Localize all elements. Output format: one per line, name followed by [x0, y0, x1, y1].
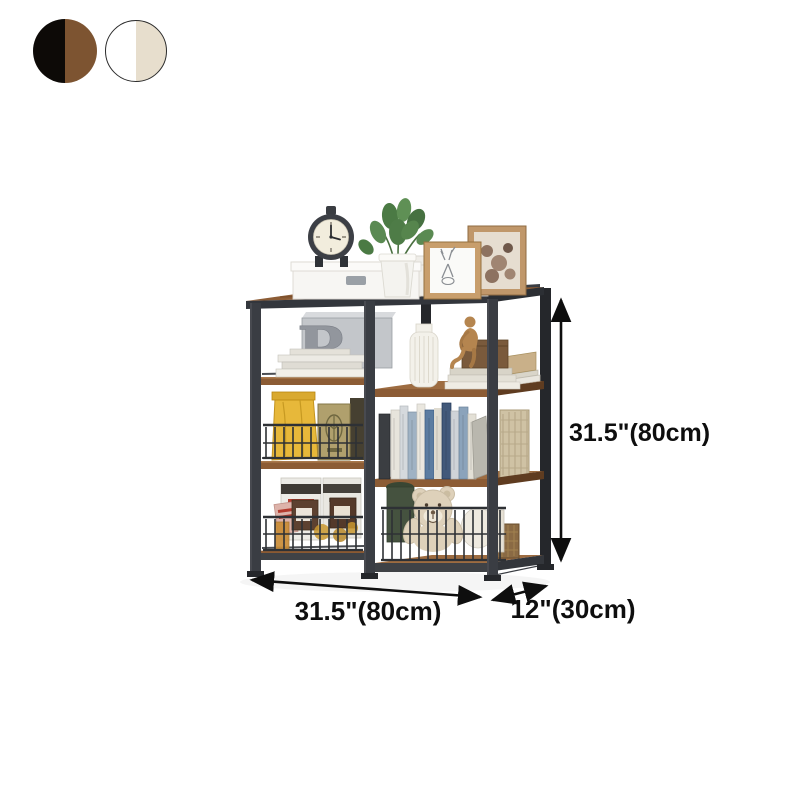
height-dimension-label: 31.5"(80cm) [569, 419, 710, 447]
mannequin-figurine [452, 317, 508, 369]
vase [410, 324, 438, 387]
width-dimension-label: 31.5"(80cm) [295, 596, 442, 626]
decor-letter-display: R [276, 312, 396, 386]
pantry-shelf-items [274, 478, 361, 550]
alarm-clock [308, 206, 354, 267]
top-decor [291, 197, 526, 299]
picture-frame-front [424, 242, 481, 299]
book-stack-right [445, 368, 520, 389]
shelf-illustration: R [0, 0, 800, 800]
teddy-bear-shelf-items [386, 482, 504, 552]
depth-dimension-label: 12"(30cm) [510, 594, 635, 624]
color-swatch-black-brown-icon[interactable] [33, 19, 97, 83]
product-image: R [0, 0, 800, 800]
standing-books-row [379, 403, 490, 479]
color-swatch-white-cream-icon[interactable] [105, 20, 167, 82]
